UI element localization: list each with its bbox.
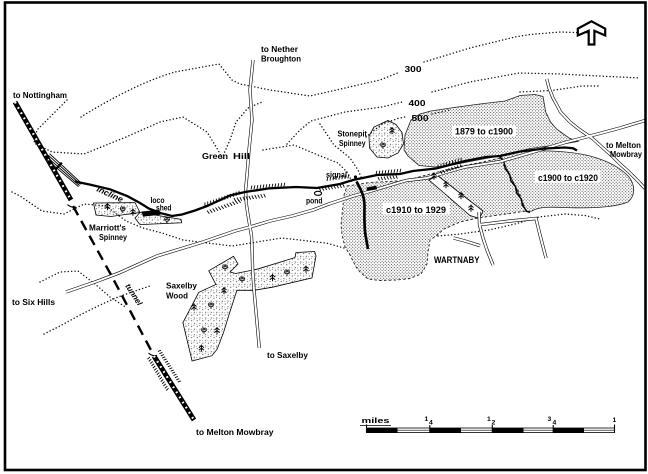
svg-text:Saxelby: Saxelby <box>166 282 197 291</box>
svg-text:Stonepit: Stonepit <box>338 130 368 139</box>
svg-text:miles: miles <box>362 416 390 425</box>
svg-text:Broughton: Broughton <box>261 55 301 64</box>
svg-text:Wood: Wood <box>166 292 188 301</box>
svg-text:to Melton: to Melton <box>606 141 641 150</box>
svg-text:300: 300 <box>405 65 423 74</box>
svg-text:Marriott's: Marriott's <box>89 224 126 233</box>
svg-text:2: 2 <box>492 420 496 427</box>
svg-text:1: 1 <box>487 416 491 423</box>
svg-text:c1900 to c1920: c1900 to c1920 <box>538 172 598 183</box>
svg-text:to Nether: to Nether <box>261 45 299 54</box>
svg-text:pond: pond <box>306 197 323 206</box>
svg-text:1: 1 <box>613 417 617 424</box>
svg-text:Spinney: Spinney <box>339 139 366 148</box>
svg-text:4: 4 <box>553 420 557 427</box>
svg-text:to Saxelby: to Saxelby <box>267 351 308 360</box>
svg-text:WARTNABY: WARTNABY <box>434 255 480 265</box>
svg-text:Hill: Hill <box>233 152 250 161</box>
svg-text:3: 3 <box>548 416 552 423</box>
svg-text:to Melton Mowbray: to Melton Mowbray <box>196 428 274 437</box>
svg-text:500: 500 <box>412 114 430 123</box>
svg-text:1879 to c1900: 1879 to c1900 <box>455 126 513 137</box>
svg-text:1: 1 <box>425 416 429 423</box>
svg-text:shed: shed <box>156 204 172 213</box>
svg-text:4: 4 <box>429 420 433 427</box>
svg-text:Green: Green <box>202 152 228 161</box>
svg-text:400: 400 <box>409 99 427 108</box>
svg-text:to Six Hills: to Six Hills <box>12 298 55 307</box>
svg-text:c1910 to 1929: c1910 to 1929 <box>386 204 446 215</box>
svg-text:to Nottingham: to Nottingham <box>13 91 67 100</box>
svg-text:signal: signal <box>326 171 347 180</box>
svg-text:Mowbray: Mowbray <box>610 150 642 159</box>
svg-text:Spinney: Spinney <box>99 233 127 242</box>
